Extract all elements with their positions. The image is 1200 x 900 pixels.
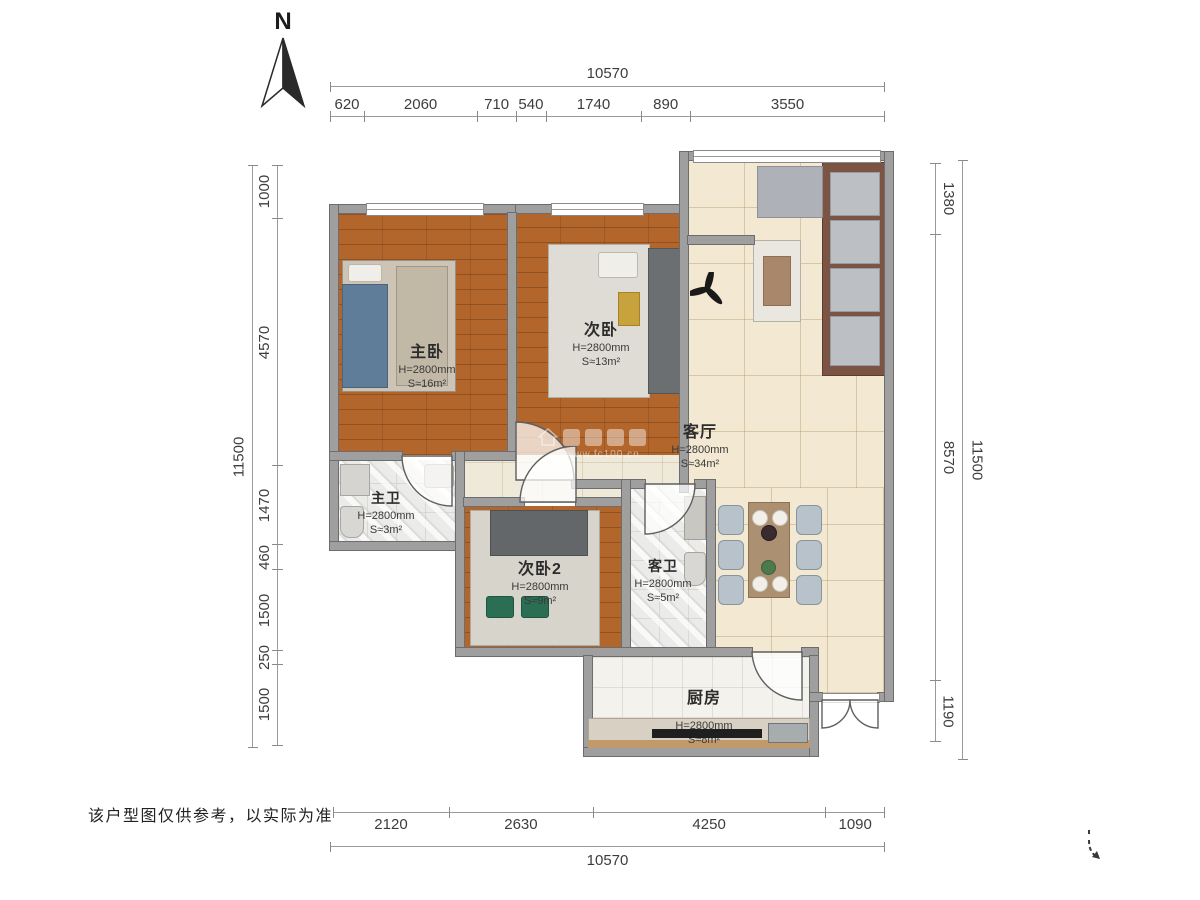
entry-door-left xyxy=(822,700,850,728)
plate xyxy=(752,576,768,592)
dimension-segment: 710 xyxy=(477,96,516,117)
chair xyxy=(796,505,822,535)
window-bedroom-2 xyxy=(551,203,644,216)
sofa-cushion xyxy=(830,220,880,264)
dimension-segment: 1500 xyxy=(252,664,278,745)
plate xyxy=(752,510,768,526)
pillow xyxy=(598,252,638,278)
table-centerpiece xyxy=(761,525,777,541)
dimension-segment: 8570 xyxy=(935,235,961,680)
room-label-guest-bath: 客卫 H=2800mm S≈5m² xyxy=(603,556,723,604)
watermark: www.fc100.cn xyxy=(538,428,646,460)
dimension-value: 460 xyxy=(256,545,273,570)
bed-3-blanket xyxy=(490,510,588,556)
floor-plan-page: { "north": { "label": "N" }, "disclaimer… xyxy=(0,0,1200,900)
dimension-chain-right: 138085701190 xyxy=(935,163,961,742)
dimension-segment: 620 xyxy=(330,96,364,117)
dimension-value: 890 xyxy=(641,96,690,113)
wall xyxy=(584,748,818,756)
dimension-segment: 460 xyxy=(252,545,278,570)
cooktop xyxy=(652,729,762,738)
wall xyxy=(456,648,752,656)
dimension-segment: 1000 xyxy=(252,165,278,219)
dimension-segment: 1380 xyxy=(935,163,961,235)
dimension-value: 1470 xyxy=(256,488,273,521)
kitchen-sink xyxy=(768,723,808,743)
dimension-value: 3550 xyxy=(690,96,885,113)
dimension-chain-top: 620206071054017408903550 xyxy=(330,96,885,117)
coffee-table-tray xyxy=(763,256,791,306)
dimension-value: 1500 xyxy=(256,688,273,721)
chair xyxy=(796,575,822,605)
dimension-segment: 4250 xyxy=(593,812,826,833)
disclaimer-text: 该户型图仅供参考，以实际为准 xyxy=(88,802,333,826)
dimension-value: 1000 xyxy=(256,175,273,208)
wall-tv-stub xyxy=(688,236,754,244)
wall xyxy=(456,452,464,656)
entry-door-sill xyxy=(822,693,880,703)
watermark-url: www.fc100.cn xyxy=(566,449,646,460)
dimension-segment: 4570 xyxy=(252,219,278,466)
dimension-value: 4250 xyxy=(593,816,826,833)
wall xyxy=(802,648,818,656)
house-icon xyxy=(538,428,558,446)
wall xyxy=(330,542,464,550)
compass-needle-icon xyxy=(248,34,318,114)
wall xyxy=(508,213,516,460)
dimension-value: 1500 xyxy=(256,593,273,626)
sofa-cushion xyxy=(830,268,880,312)
watermark-glyph xyxy=(629,429,646,446)
dimension-segment: 2630 xyxy=(449,812,593,833)
pillow xyxy=(348,264,382,282)
vanity xyxy=(684,496,706,540)
chair xyxy=(718,505,744,535)
dimension-segment: 2120 xyxy=(333,812,449,833)
wall xyxy=(516,205,553,213)
room-label-bedroom-2: 次卧 H=2800mm S≈13m² xyxy=(541,316,661,368)
dimension-value: 1190 xyxy=(940,695,957,727)
dimension-segment: 540 xyxy=(516,96,546,117)
dimension-segment: 3550 xyxy=(690,96,885,117)
sofa-cushion xyxy=(830,172,880,216)
dimension-value: 710 xyxy=(477,96,516,113)
wall xyxy=(464,498,524,506)
bathroom-sink xyxy=(424,464,454,488)
cursor-arrow-icon xyxy=(1082,828,1106,864)
dimension-value: 540 xyxy=(516,96,546,113)
dimension-segment: 1470 xyxy=(252,466,278,545)
ceiling-fan-icon xyxy=(690,272,724,306)
table-plant xyxy=(761,560,776,575)
dimension-value: 620 xyxy=(330,96,364,113)
wall xyxy=(572,480,645,488)
wall xyxy=(330,452,402,460)
wall xyxy=(576,498,622,506)
dimension-segment: 250 xyxy=(252,651,278,664)
entry-door-right xyxy=(850,700,878,728)
dimension-segment: 1500 xyxy=(252,570,278,651)
dimension-segment: 2060 xyxy=(364,96,477,117)
dimension-value: 4570 xyxy=(256,326,273,359)
dimension-value: 8570 xyxy=(940,441,957,474)
dimension-value: 1090 xyxy=(825,816,885,833)
sofa-chaise xyxy=(757,166,823,218)
wall xyxy=(810,656,818,756)
dimension-value: 1740 xyxy=(546,96,642,113)
watermark-glyph xyxy=(585,429,602,446)
dimension-total-bottom: 10570 xyxy=(330,846,885,847)
room-label-living-room: 客厅 H=2800mm S≈34m² xyxy=(640,418,760,470)
dimension-segment: 1740 xyxy=(546,96,642,117)
dimension-segment: 890 xyxy=(641,96,690,117)
wall xyxy=(885,152,893,701)
dimension-segment: 1090 xyxy=(825,812,885,833)
chair xyxy=(796,540,822,570)
dimension-total-top: 10570 xyxy=(330,86,885,87)
wall xyxy=(480,205,516,213)
dimension-chain-bottom: 2120263042501090 xyxy=(333,812,885,833)
window-master-bedroom xyxy=(366,203,484,216)
plate xyxy=(772,576,788,592)
sofa-cushion xyxy=(830,316,880,366)
dimension-value: 2120 xyxy=(333,816,449,833)
north-label: N xyxy=(248,10,318,34)
dimension-value: 1380 xyxy=(940,182,957,215)
dimension-chain-left: 10004570147046015002501500 xyxy=(252,165,278,745)
dimension-value: 2630 xyxy=(449,816,593,833)
plate xyxy=(772,510,788,526)
dimension-segment: 1190 xyxy=(935,680,961,742)
watermark-glyph xyxy=(563,429,580,446)
room-label-bedroom-3: 次卧2 H=2800mm S≈9m² xyxy=(480,555,600,607)
wall xyxy=(810,693,822,701)
dimension-total-right: 11500 xyxy=(962,160,963,760)
room-label-master-bath: 主卫 H=2800mm S≈3m² xyxy=(326,488,446,536)
north-indicator: N xyxy=(248,10,318,118)
dimension-value: 2060 xyxy=(364,96,477,113)
room-label-master-bedroom: 主卧 H=2800mm S≈16m² xyxy=(367,338,487,390)
watermark-glyph xyxy=(607,429,624,446)
window-living-room xyxy=(693,150,881,163)
